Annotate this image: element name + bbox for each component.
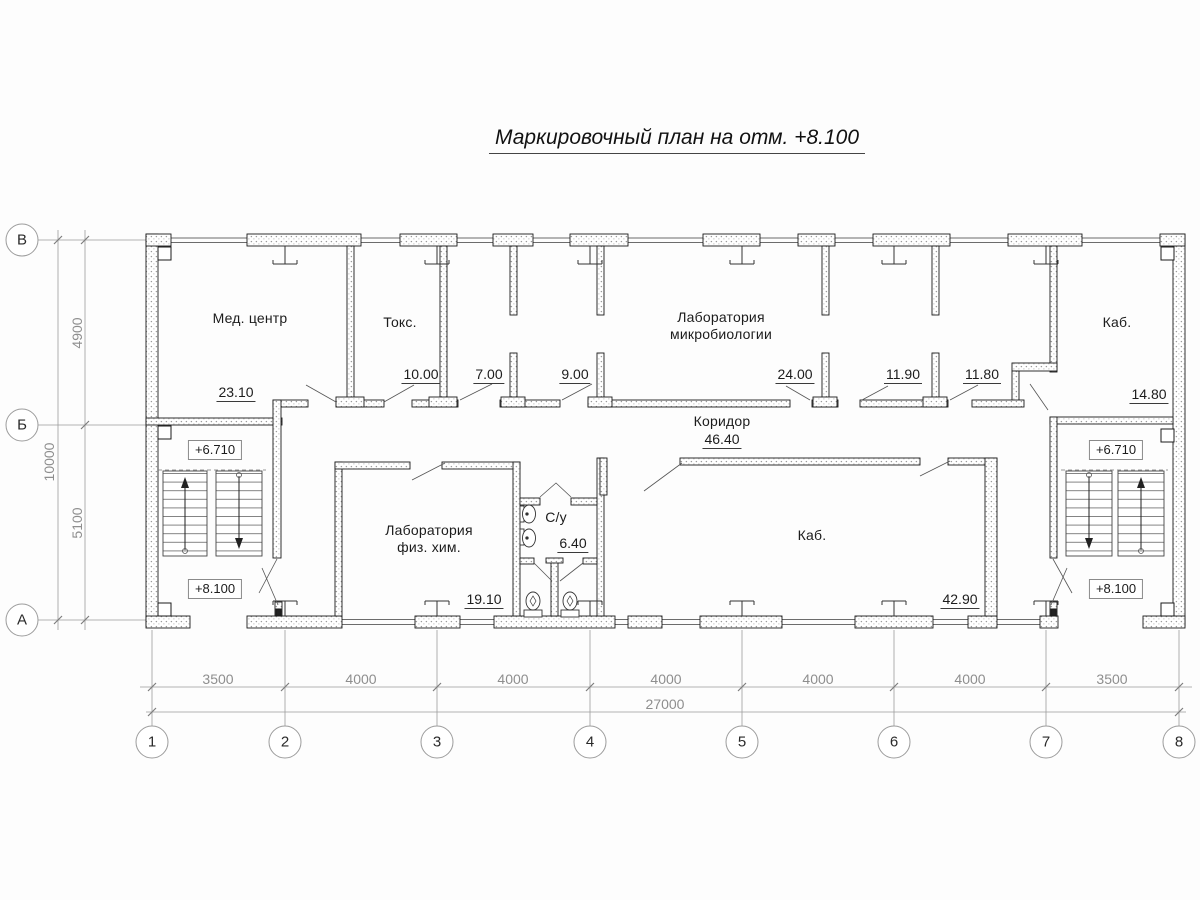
room-area-9: 9.00 xyxy=(559,366,590,384)
grid-column-marker-3: 3 xyxy=(421,726,454,759)
elevation-right-lower: +8.100 xyxy=(1089,579,1143,599)
room-area-corridor: 46.40 xyxy=(702,431,741,449)
room-label-kab-bottom: Каб. xyxy=(798,527,827,543)
room-label-corridor: Коридор xyxy=(694,413,751,429)
room-area-kab-bottom: 42.90 xyxy=(940,591,979,609)
column-symbols xyxy=(273,246,1058,616)
sink-symbols xyxy=(520,505,536,547)
dimension-bay-5: 4000 xyxy=(802,671,833,687)
room-area-med-center: 23.10 xyxy=(216,384,255,402)
grid-row-marker-a: А xyxy=(6,604,39,637)
room-area-11-90: 11.90 xyxy=(884,366,922,384)
dimension-bay-6: 4000 xyxy=(954,671,985,687)
drawing-title: Маркировочный план на отм. +8.100 xyxy=(489,126,865,154)
room-area-toks: 10.00 xyxy=(401,366,440,384)
dimension-bay-4: 4000 xyxy=(650,671,681,687)
room-area-fiz-him: 19.10 xyxy=(464,591,503,609)
dimension-lines xyxy=(38,230,1192,726)
room-label-su: С/у xyxy=(545,509,567,525)
stairs-left xyxy=(158,470,266,556)
grid-column-marker-1: 1 xyxy=(136,726,169,759)
room-label-toks: Токс. xyxy=(383,314,416,330)
grid-column-marker-4: 4 xyxy=(574,726,607,759)
door-swing-lines xyxy=(259,384,1072,605)
grid-column-marker-5: 5 xyxy=(726,726,759,759)
grid-column-marker-7: 7 xyxy=(1030,726,1063,759)
room-label-fiz-him-line1: Лаборатория xyxy=(385,522,472,538)
window-lines xyxy=(146,238,1185,625)
room-area-11-80: 11.80 xyxy=(963,366,1001,384)
elevation-right-upper: +6.710 xyxy=(1089,440,1143,460)
floor-plan-page: Маркировочный план на отм. +8.100 Мед. ц… xyxy=(0,0,1200,900)
walls xyxy=(146,234,1185,628)
room-label-microbio-line2: микробиологии xyxy=(670,326,772,342)
grid-row-marker-v: В xyxy=(6,224,39,257)
elevation-left-upper: +6.710 xyxy=(188,440,242,460)
dimension-row-segment-1: 4900 xyxy=(69,317,85,348)
grid-row-marker-b: Б xyxy=(6,409,39,442)
stairs-right xyxy=(1061,470,1168,556)
room-area-su: 6.40 xyxy=(557,535,588,553)
dimension-row-segment-2: 5100 xyxy=(69,507,85,538)
dimension-total-height: 10000 xyxy=(41,443,57,482)
grid-column-marker-2: 2 xyxy=(269,726,302,759)
room-area-microbio: 24.00 xyxy=(775,366,814,384)
room-area-kab-top: 14.80 xyxy=(1129,386,1168,404)
dimension-total-width: 27000 xyxy=(646,696,685,712)
dimension-bay-1: 3500 xyxy=(202,671,233,687)
elevation-left-lower: +8.100 xyxy=(188,579,242,599)
dimension-bay-3: 4000 xyxy=(497,671,528,687)
room-label-kab-top: Каб. xyxy=(1103,314,1132,330)
corner-column-marks xyxy=(158,247,1174,616)
room-label-fiz-him-line2: физ. хим. xyxy=(397,539,461,555)
room-label-med-center: Мед. центр xyxy=(213,310,288,326)
dimension-bay-2: 4000 xyxy=(345,671,376,687)
room-area-7: 7.00 xyxy=(473,366,504,384)
grid-column-marker-8: 8 xyxy=(1163,726,1196,759)
room-label-microbio-line1: Лаборатория xyxy=(677,309,764,325)
dimension-bay-7: 3500 xyxy=(1096,671,1127,687)
grid-column-marker-6: 6 xyxy=(878,726,911,759)
